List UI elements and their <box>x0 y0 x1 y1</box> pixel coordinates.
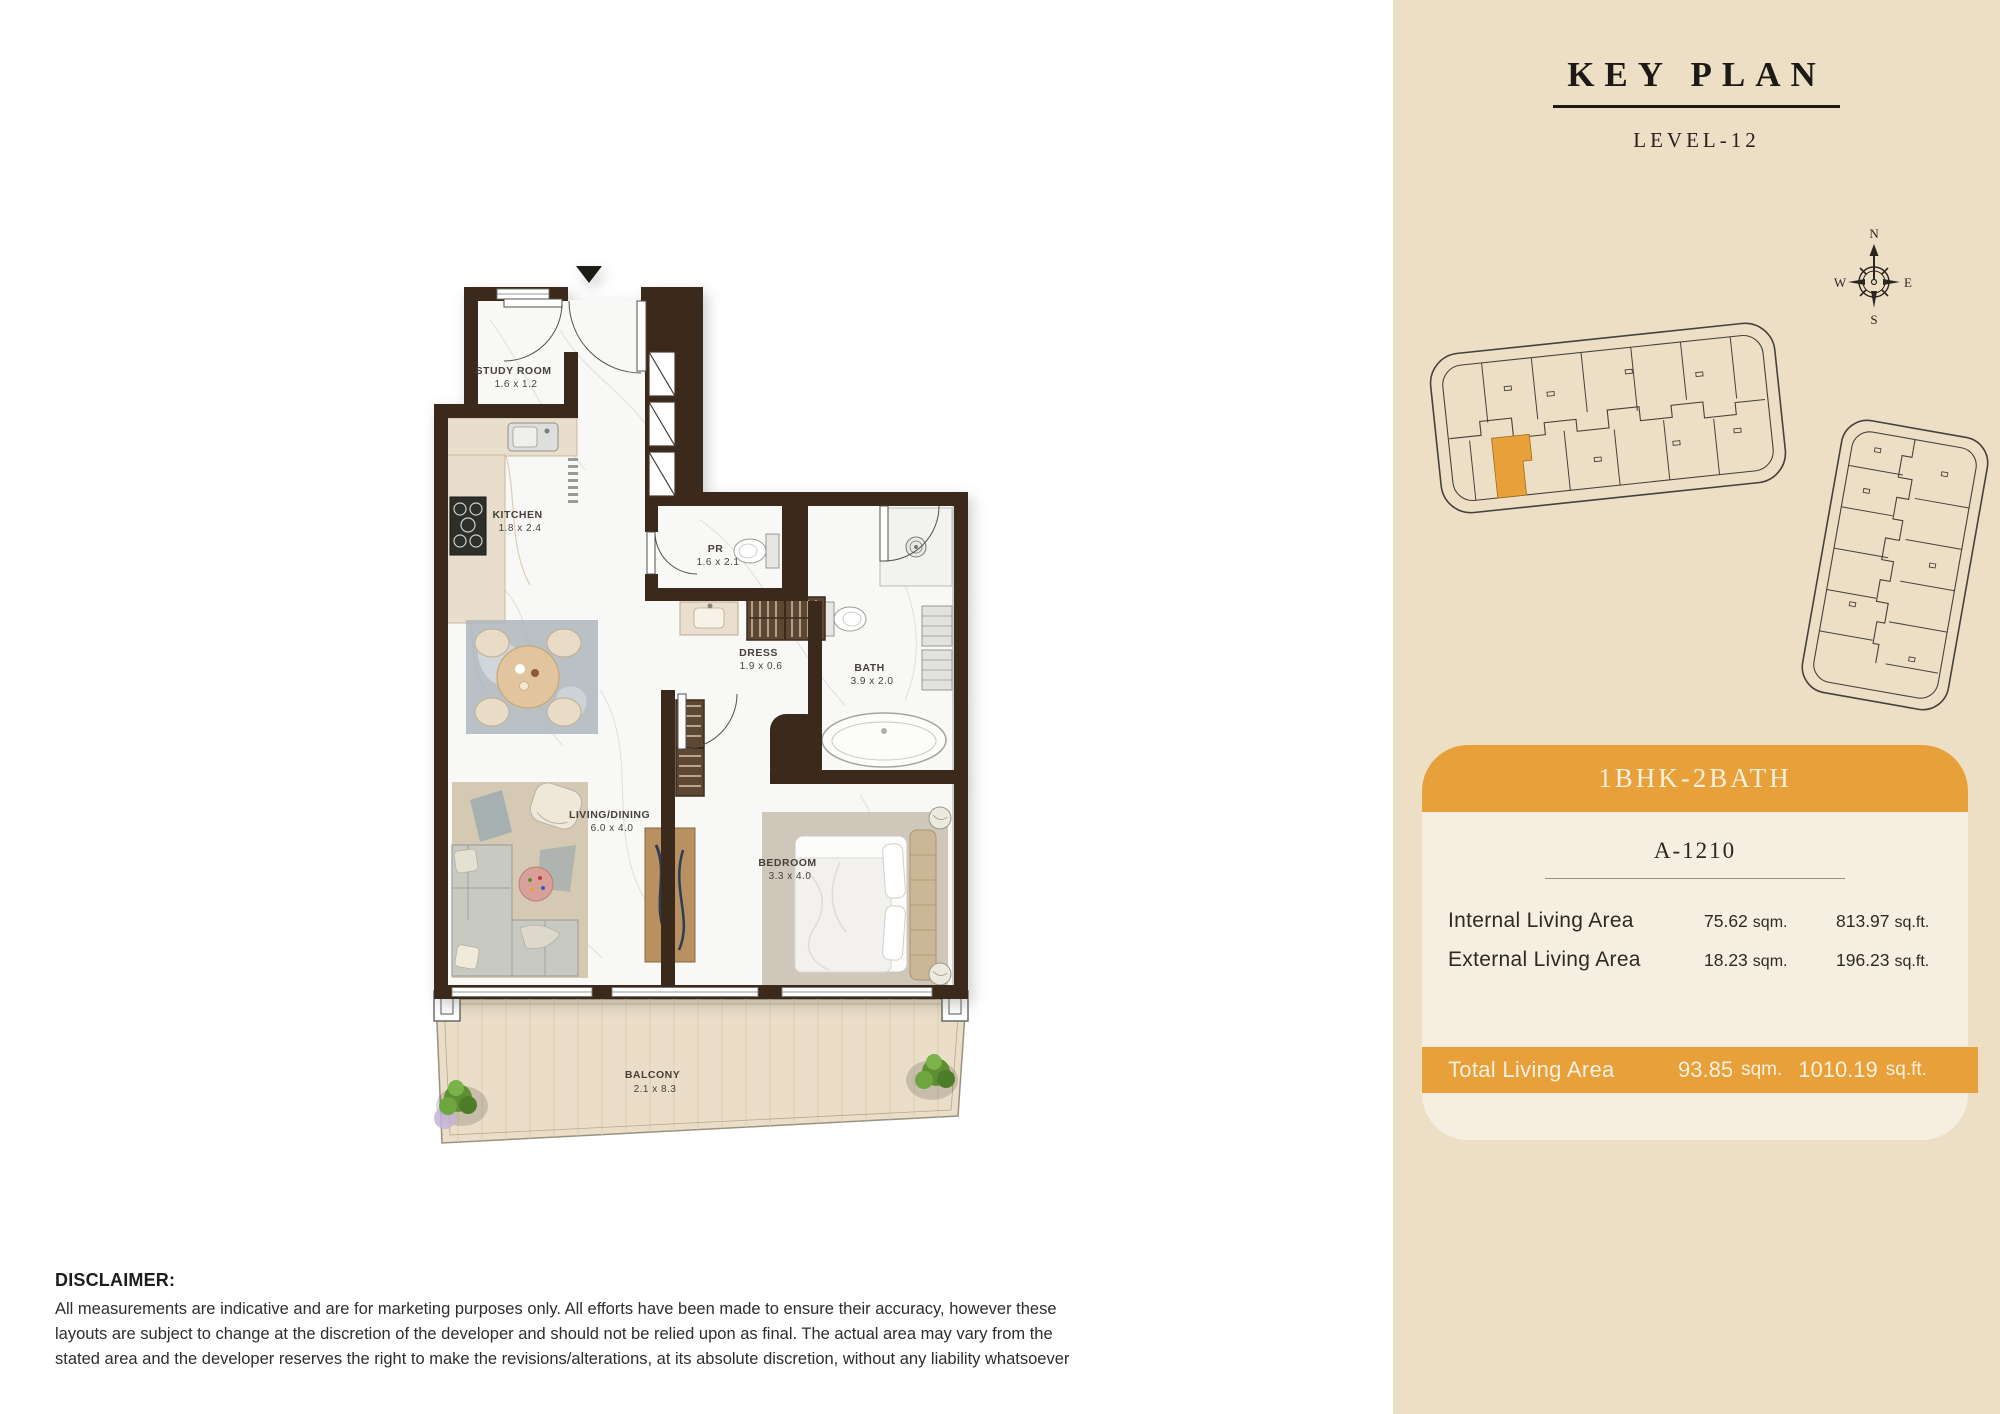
area-sqm-unit: sqm. <box>1753 914 1788 932</box>
balcony-area: BALCONY 2.1 x 8.3 <box>434 991 968 1150</box>
bedroom-furniture <box>762 807 951 986</box>
total-label: Total Living Area <box>1448 1057 1678 1083</box>
key-plan-panel: KEY PLAN LEVEL-12 N S E W <box>1393 0 2000 1414</box>
sink-icon <box>508 423 558 451</box>
area-label: Internal Living Area <box>1448 909 1704 933</box>
brochure-page: BALCONY 2.1 x 8.3 <box>0 0 2000 1414</box>
total-sqft-value: 1010.19 <box>1798 1057 1878 1083</box>
compass-n: N <box>1869 226 1879 241</box>
compass-e: E <box>1904 275 1912 290</box>
key-plan-building-a <box>1428 320 1789 515</box>
area-sqft-unit: sq.ft. <box>1895 953 1930 971</box>
area-sqm-value: 75.62 <box>1704 911 1748 932</box>
area-sqft-value: 196.23 <box>1836 950 1890 971</box>
disclaimer: DISCLAIMER: All measurements are indicat… <box>55 1270 1100 1371</box>
total-sqft-unit: sq.ft. <box>1886 1059 1927 1081</box>
disclaimer-body: All measurements are indicative and are … <box>55 1297 1100 1371</box>
apartment-unit: STUDY ROOM 1.6 x 1.2 KITCHEN 1.8 x 2.4 P… <box>434 266 968 999</box>
area-sqm-value: 18.23 <box>1704 950 1748 971</box>
total-sqm-value: 93.85 <box>1678 1057 1733 1083</box>
nightstand-icon <box>929 963 951 985</box>
area-row-internal: Internal Living Area 75.62 sqm. 813.97 s… <box>1422 909 1968 933</box>
area-label: External Living Area <box>1448 948 1704 972</box>
unit-number-underline <box>1545 878 1845 879</box>
shower-drain-icon <box>906 537 926 557</box>
area-sqft-unit: sq.ft. <box>1895 914 1930 932</box>
entry-arrow-icon <box>576 266 602 283</box>
shaft-hatches <box>649 352 675 496</box>
living-furniture <box>452 780 588 978</box>
unit-info-card: 1BHK-2BATH A-1210 Internal Living Area 7… <box>1422 745 1968 1140</box>
compass-icon: N S E W <box>1834 226 1912 327</box>
unit-number: A-1210 <box>1422 838 1968 864</box>
nightstand-icon <box>929 807 951 829</box>
room-label-bath: BATH 3.9 x 2.0 <box>851 658 894 687</box>
area-sqft-value: 813.97 <box>1836 911 1890 932</box>
key-plan-building-b <box>1798 416 1992 714</box>
unit-type-label: 1BHK-2BATH <box>1598 763 1792 794</box>
area-row-external: External Living Area 18.23 sqm. 196.23 s… <box>1422 948 1968 972</box>
room-label-kitchen: KITCHEN 1.8 x 2.4 <box>492 505 547 534</box>
highlighted-unit <box>1491 434 1535 498</box>
floor-plan: BALCONY 2.1 x 8.3 <box>0 0 1393 1414</box>
room-label-balcony: BALCONY 2.1 x 8.3 <box>625 1065 685 1095</box>
room-label-dress: DRESS 1.9 x 0.6 <box>739 643 783 672</box>
compass-s: S <box>1870 312 1877 327</box>
vanity-sink-icon <box>680 602 738 635</box>
bathtub-icon <box>822 713 946 767</box>
compass-w: W <box>1834 275 1847 290</box>
dining-set <box>466 620 598 734</box>
unit-type-header: 1BHK-2BATH <box>1422 745 1968 812</box>
total-area-band: Total Living Area 93.85 sqm. 1010.19 sq.… <box>1422 1047 1978 1093</box>
area-sqm-unit: sqm. <box>1753 953 1788 971</box>
disclaimer-title: DISCLAIMER: <box>55 1270 1100 1291</box>
key-plan-art: N S E W <box>1393 0 2000 1414</box>
stove-icon <box>450 497 486 555</box>
coffee-table-icon <box>519 867 553 901</box>
total-sqm-unit: sqm. <box>1741 1059 1782 1081</box>
